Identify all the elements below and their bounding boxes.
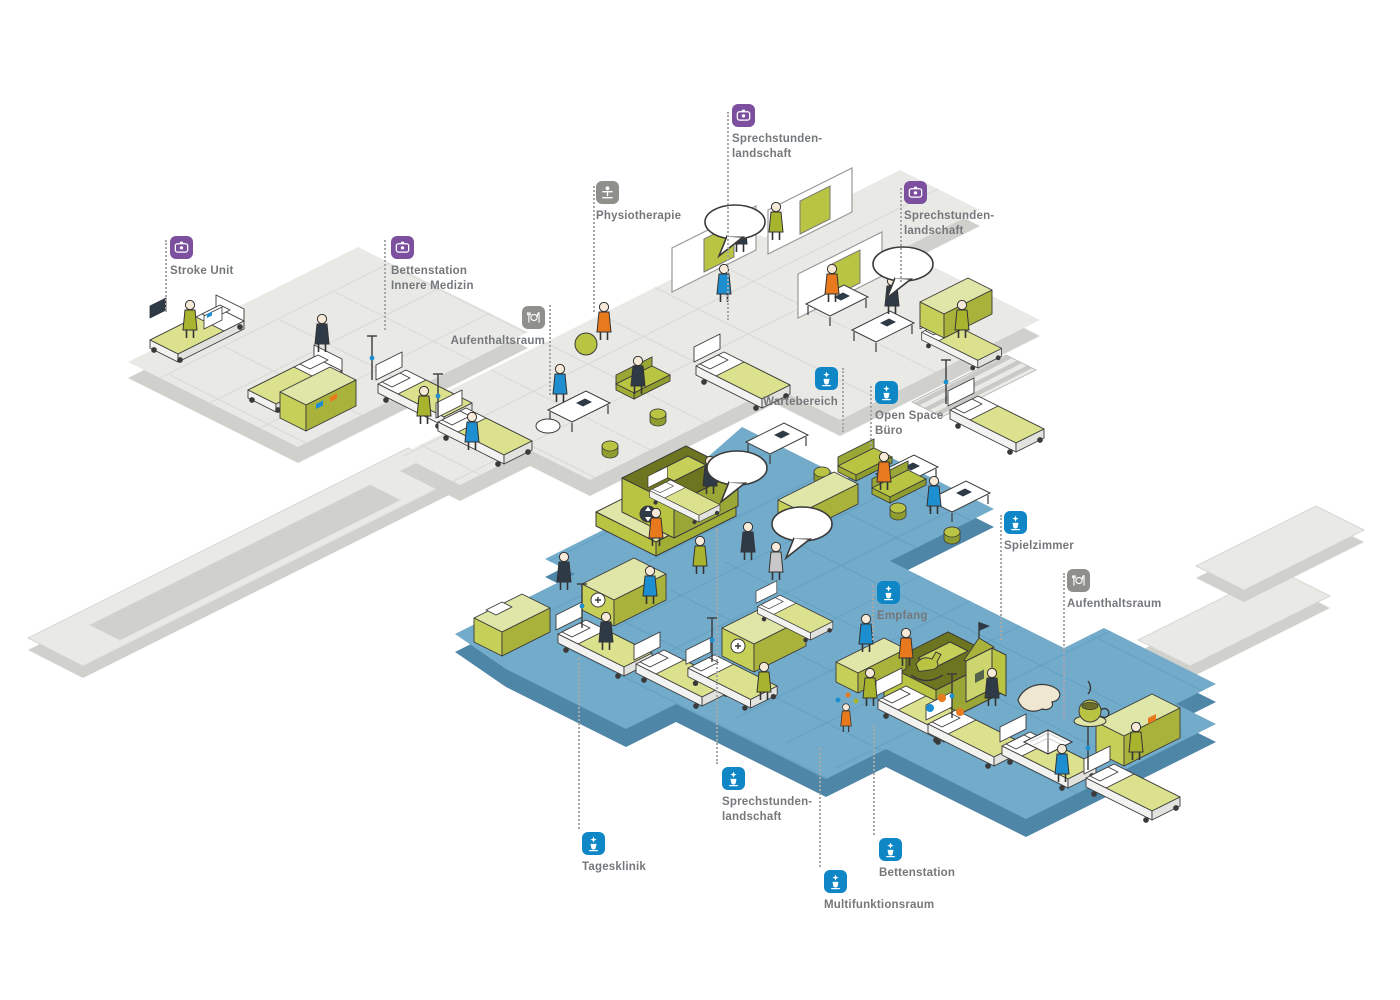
leader-line bbox=[549, 305, 551, 395]
physiotherapie-icon bbox=[596, 181, 619, 204]
label-spielzimmer: Spielzimmer bbox=[1004, 511, 1074, 554]
label-text: Open Space Büro bbox=[875, 409, 943, 438]
label-sprechstunden-bottom: Sprechstunden- landschaft bbox=[722, 767, 812, 824]
leader-line bbox=[873, 725, 875, 835]
tagesklinik-icon bbox=[582, 832, 605, 855]
aufenthaltsraum-left-icon bbox=[522, 306, 545, 329]
bettenstation-icon bbox=[879, 838, 902, 861]
label-bettenstation-innere: Bettenstation Innere Medizin bbox=[391, 236, 474, 293]
leader-line bbox=[165, 240, 167, 312]
sprechstunden-right-icon bbox=[904, 181, 927, 204]
label-text: Sprechstunden- landschaft bbox=[904, 209, 994, 238]
leader-line bbox=[842, 368, 844, 432]
label-text: Aufenthaltsraum bbox=[1067, 597, 1161, 612]
label-stroke-unit: Stroke Unit bbox=[170, 236, 234, 279]
leader-line bbox=[1000, 515, 1002, 640]
label-aufenthaltsraum-left: Aufenthaltsraum bbox=[425, 306, 545, 349]
leader-line bbox=[593, 186, 595, 312]
stroke-unit-icon bbox=[170, 236, 193, 259]
leader-line bbox=[716, 528, 718, 764]
aufenthaltsraum-right-icon bbox=[1067, 569, 1090, 592]
leader-line bbox=[727, 112, 729, 320]
hospital-map-page: Sprechstunden- landschaft Physiotherapie… bbox=[0, 0, 1400, 1000]
label-text: Multifunktionsraum bbox=[824, 898, 934, 913]
label-sprechstunden-right: Sprechstunden- landschaft bbox=[904, 181, 994, 238]
label-text: Empfang bbox=[877, 609, 928, 624]
label-text: Wartebereich bbox=[763, 395, 838, 410]
spielzimmer-icon bbox=[1004, 511, 1027, 534]
label-sprechstunden-top: Sprechstunden- landschaft bbox=[732, 104, 822, 161]
multifunktionsraum-icon bbox=[824, 870, 847, 893]
leader-line bbox=[870, 386, 872, 448]
open-space-buero-icon bbox=[875, 381, 898, 404]
leader-line bbox=[900, 188, 902, 282]
wartebereich-icon bbox=[815, 367, 838, 390]
label-empfang: Empfang bbox=[877, 581, 928, 624]
sprechstunden-top-icon bbox=[732, 104, 755, 127]
label-multifunktionsraum: Multifunktionsraum bbox=[824, 870, 934, 913]
label-text: Sprechstunden- landschaft bbox=[722, 795, 812, 824]
label-tagesklinik: Tagesklinik bbox=[582, 832, 646, 875]
label-aufenthaltsraum-right: Aufenthaltsraum bbox=[1067, 569, 1161, 612]
label-text: Physiotherapie bbox=[596, 209, 681, 224]
leader-line bbox=[384, 240, 386, 330]
label-text: Spielzimmer bbox=[1004, 539, 1074, 554]
leader-line bbox=[819, 748, 821, 867]
label-text: Tagesklinik bbox=[582, 860, 646, 875]
sprechstunden-bottom-icon bbox=[722, 767, 745, 790]
label-text: Stroke Unit bbox=[170, 264, 234, 279]
label-open-space-buero: Open Space Büro bbox=[875, 381, 943, 438]
empfang-icon bbox=[877, 581, 900, 604]
leader-line bbox=[578, 658, 580, 829]
leader-line bbox=[1063, 573, 1065, 718]
label-text: Sprechstunden- landschaft bbox=[732, 132, 822, 161]
label-text: Aufenthaltsraum bbox=[451, 334, 545, 349]
corridor-strip-right bbox=[1138, 506, 1364, 678]
hospital-illustration bbox=[0, 0, 1400, 1000]
label-wartebereich: Wartebereich bbox=[738, 367, 838, 410]
label-text: Bettenstation Innere Medizin bbox=[391, 264, 474, 293]
corridor-strip-left bbox=[28, 448, 463, 678]
leader-line bbox=[872, 585, 874, 640]
bettenstation-innere-icon bbox=[391, 236, 414, 259]
label-physiotherapie: Physiotherapie bbox=[596, 181, 681, 224]
